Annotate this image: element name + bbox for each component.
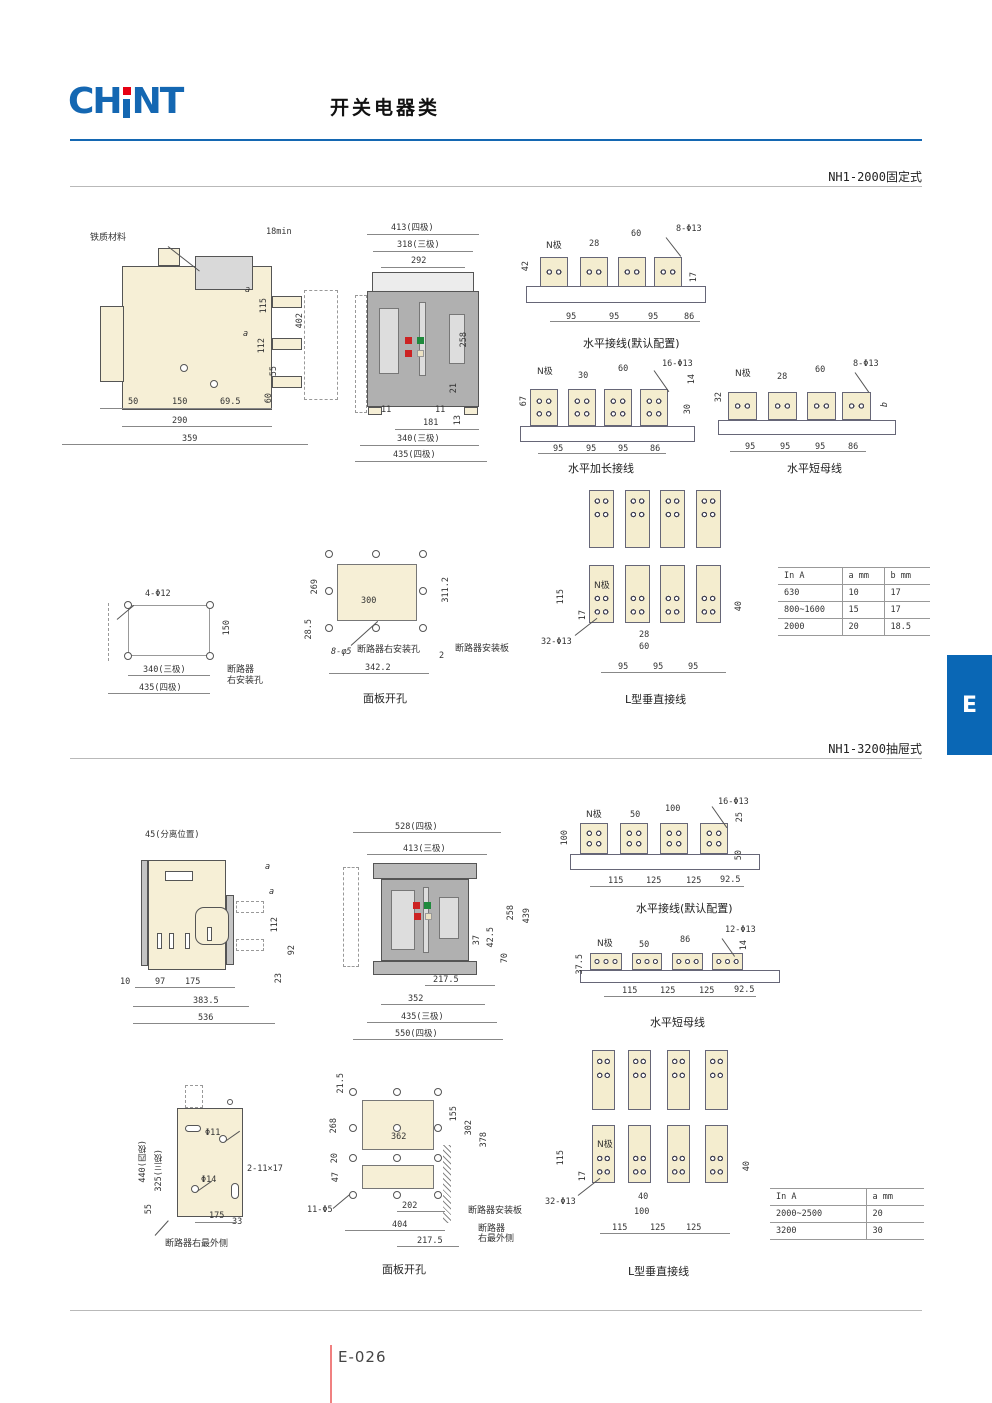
dim-100: 100 <box>634 1208 649 1217</box>
dim-413-4pole: 413(四极) <box>391 224 434 233</box>
leader-line <box>575 618 598 636</box>
dim-line <box>590 886 744 887</box>
dim-55: 55 <box>270 366 279 376</box>
indicator-red <box>405 350 412 357</box>
dim-50: 50 <box>128 398 138 407</box>
busbar-pad <box>592 1125 615 1183</box>
table-row: 2000~2500 20 <box>770 1206 924 1223</box>
dim-line <box>381 1004 485 1005</box>
header-rule <box>70 139 922 141</box>
panel-hole <box>349 1088 357 1096</box>
note-right-edge: 右最外侧 <box>478 1235 514 1245</box>
busbar-pad <box>660 565 685 623</box>
dim-line <box>62 444 308 445</box>
dim-line <box>730 451 866 452</box>
dim-150: 150 <box>223 620 232 635</box>
dim-2: 2 <box>439 652 444 661</box>
busbar-pad <box>696 565 721 623</box>
panel-hole <box>393 1191 401 1199</box>
footer-accent-line <box>330 1345 332 1403</box>
table-row: 3200 30 <box>770 1223 924 1240</box>
leader-line <box>855 372 870 392</box>
dim-a: a <box>269 888 274 897</box>
dim-line <box>550 321 700 322</box>
diagram-title: 面板开孔 <box>363 690 407 706</box>
dim-42: 42 <box>522 261 531 271</box>
dim-112: 112 <box>271 917 280 932</box>
dim-28: 28 <box>589 240 599 249</box>
dim-95: 95 <box>688 663 698 672</box>
panel-hole <box>419 624 427 632</box>
centerline-dashed <box>108 603 109 661</box>
table-cell: a mm <box>866 1189 924 1206</box>
dim-55: 55 <box>145 1204 154 1214</box>
hole-rectangle <box>128 605 210 656</box>
panel-hole <box>325 550 333 558</box>
dim-100: 100 <box>665 805 680 814</box>
busbar-pad <box>640 389 668 426</box>
table-cell: a mm <box>842 568 884 585</box>
dim-line <box>397 1246 459 1247</box>
diagram-title: 水平短母线 <box>650 1014 705 1030</box>
busbar-pad <box>705 1050 728 1110</box>
dim-155: 155 <box>450 1106 459 1121</box>
dim-115: 115 <box>622 987 637 996</box>
panel-hole <box>393 1124 401 1132</box>
dim-340-3pole: 340(三极) <box>143 666 186 675</box>
dim-181: 181 <box>423 419 438 428</box>
indicator-green <box>417 337 424 344</box>
logo-text-left: CH <box>68 87 121 118</box>
table-cell: 3200 <box>770 1223 866 1240</box>
dim-92.5: 92.5 <box>720 876 740 885</box>
dim-115: 115 <box>557 1150 566 1165</box>
section1-label: NH1-2000固定式 <box>70 168 922 185</box>
busbar-pad <box>620 823 648 854</box>
dim-30: 30 <box>684 404 693 414</box>
dim-115: 115 <box>612 1224 627 1233</box>
busbar-pad <box>604 389 632 426</box>
foot-left <box>368 407 382 415</box>
table-row: 800~1600 15 17 <box>778 602 930 619</box>
dim-line <box>395 429 479 430</box>
dim-line <box>100 408 272 409</box>
dim-8-d5: 8-φ5 <box>331 648 351 657</box>
dim-60: 60 <box>618 365 628 374</box>
table-cell: b mm <box>884 568 930 585</box>
diagram-title: 水平短母线 <box>787 460 842 476</box>
dim-28: 28 <box>639 631 649 640</box>
dim-70: 70 <box>501 953 510 963</box>
dim-11-d5: 11-Φ5 <box>307 1206 333 1215</box>
dim-line <box>353 1039 503 1040</box>
dim-435-3pole: 435(三极) <box>401 1013 444 1022</box>
dim-d14: Φ14 <box>201 1176 216 1185</box>
dim-125: 125 <box>646 877 661 886</box>
diagram-title: L型垂直接线 <box>628 1263 689 1279</box>
dim-112: 112 <box>258 338 267 353</box>
busbar-pad <box>540 257 568 287</box>
dim-95: 95 <box>618 663 628 672</box>
table-cell: 17 <box>884 585 930 602</box>
slot-11x17 <box>231 1183 239 1199</box>
dim-92: 92 <box>288 945 297 955</box>
dim-40: 40 <box>743 1161 752 1171</box>
diagram-horizontal-default-2: N极 50 100 16-Φ13 25 100 50 115 125 125 9… <box>560 798 790 913</box>
busbar-pad <box>632 953 662 970</box>
busbar-pad <box>667 1050 690 1110</box>
dim-b: b <box>881 402 890 407</box>
dim-258: 258 <box>507 905 516 920</box>
dim-402: 402 <box>296 313 305 328</box>
dim-11: 11 <box>435 406 445 415</box>
dim-217.5: 217.5 <box>433 976 459 985</box>
panel-hole <box>419 550 427 558</box>
diagram-mounting-plate-2: 440(四极) 325(三极) Φ11 Φ14 2-11×17 55 175 3… <box>115 1085 325 1260</box>
diagram-title: 面板开孔 <box>382 1261 426 1277</box>
leader-line <box>666 237 682 257</box>
dim-383.5: 383.5 <box>193 997 219 1006</box>
busbar-pad <box>628 1125 651 1183</box>
table-cell: 20 <box>842 619 884 636</box>
dim-359: 359 <box>182 435 197 444</box>
page-number: E-026 <box>338 1348 387 1366</box>
small-hole <box>227 1099 233 1105</box>
table-cell: 20 <box>866 1206 924 1223</box>
table-header-row: In A a mm b mm <box>778 568 930 585</box>
dim-25: 25 <box>736 812 745 822</box>
busbar-pad <box>580 823 608 854</box>
panel-hole <box>393 1154 401 1162</box>
busbar-pad <box>590 953 622 970</box>
busbar-pad <box>580 257 608 287</box>
foot-right <box>464 407 478 415</box>
logo-i-stem <box>123 99 130 118</box>
dim-340-3pole: 340(三极) <box>397 435 440 444</box>
table-cell: 30 <box>866 1223 924 1240</box>
dim-95: 95 <box>653 663 663 672</box>
dim-40: 40 <box>735 601 744 611</box>
dim-a: a <box>243 330 248 339</box>
dim-352: 352 <box>408 995 423 1004</box>
dim-line <box>367 234 479 235</box>
dim-100: 100 <box>561 830 570 845</box>
dim-16-d13: 16-Φ13 <box>662 360 693 369</box>
dim-325-3pole: 325(三极) <box>155 1149 164 1192</box>
mount-hole <box>206 652 214 660</box>
panel-hole <box>349 1154 357 1162</box>
busbar-pad <box>768 392 797 420</box>
dim-18min: 18min <box>266 228 292 237</box>
busbar-base <box>526 286 706 303</box>
busbar-base <box>580 970 780 983</box>
diagram-side-view-2: 45(分离位置) a a 112 92 23 10 97 175 383.5 5… <box>105 815 340 1040</box>
busbar-pad <box>589 490 614 548</box>
dim-440-4pole: 440(四极) <box>139 1140 148 1183</box>
dim-42.5: 42.5 <box>487 927 496 947</box>
dim-16-d13: 16-Φ13 <box>718 798 749 807</box>
table-cell: 2000 <box>778 619 842 636</box>
busbar-base <box>570 854 760 870</box>
note-breaker: 断路器 <box>227 666 254 676</box>
dim-line <box>367 1022 497 1023</box>
dim-14: 14 <box>740 940 749 950</box>
dim-17: 17 <box>690 272 699 282</box>
breaker-tab <box>158 248 180 266</box>
dim-4-d12: 4-Φ12 <box>145 590 171 599</box>
dim-line <box>355 461 487 462</box>
busbar-pad <box>618 257 646 287</box>
busbar-pad <box>592 1050 615 1110</box>
dim-528-4pole: 528(四极) <box>395 823 438 832</box>
busbar-base <box>718 420 896 435</box>
handle-octagon <box>195 907 229 945</box>
dim-269: 269 <box>311 579 320 594</box>
mount-hole <box>206 601 214 609</box>
panel-hole <box>349 1191 357 1199</box>
busbar-pad <box>625 490 650 548</box>
dim-60: 60 <box>815 366 825 375</box>
dim-378: 378 <box>480 1132 489 1147</box>
cutout-area-lower <box>362 1165 434 1189</box>
leader-line <box>351 621 378 646</box>
dim-21.5: 21.5 <box>337 1073 346 1093</box>
note-mounting-plate: 断路器安装板 <box>455 645 509 655</box>
diagram-horizontal-default-1: N极 28 60 8-Φ13 42 17 95 95 95 86 水平接线(默认… <box>520 225 920 350</box>
dim-line <box>600 1233 730 1234</box>
dim-125: 125 <box>699 987 714 996</box>
dim-10: 10 <box>120 978 130 987</box>
diagram-title: 水平加长接线 <box>568 460 634 476</box>
terminal-dashed <box>236 901 264 913</box>
dim-290: 290 <box>172 417 187 426</box>
indicator-red <box>405 337 412 344</box>
dim-line <box>135 987 235 988</box>
terminal-upper <box>272 296 302 308</box>
mount-hole <box>180 364 188 372</box>
diagram-title: 水平接线(默认配置) <box>636 900 733 916</box>
dim-125: 125 <box>686 877 701 886</box>
busbar-pad <box>705 1125 728 1183</box>
busbar-base <box>520 426 695 442</box>
terminal-mid <box>272 338 302 350</box>
note-breaker-right-edge: 断路器右最外侧 <box>165 1240 228 1250</box>
panel-dashed-outline <box>304 290 338 400</box>
note-right-mount-hole: 断路器右安装孔 <box>357 646 420 656</box>
panel-hole <box>434 1154 442 1162</box>
panel-hole <box>393 1088 401 1096</box>
section2-label: NH1-3200抽屉式 <box>70 740 922 757</box>
dim-line <box>381 267 465 268</box>
bottom-flange <box>373 961 477 975</box>
dim-439: 439 <box>523 908 532 923</box>
busbar-pad <box>728 392 757 420</box>
chapter-tab-e: E <box>947 655 992 755</box>
dim-50: 50 <box>735 850 744 860</box>
busbar-pad <box>589 565 614 623</box>
vent-slot <box>169 933 174 949</box>
table-row: 630 10 17 <box>778 585 930 602</box>
table-header-row: In A a mm <box>770 1189 924 1206</box>
dim-40: 40 <box>638 1193 648 1202</box>
panel-hole <box>325 587 333 595</box>
dim-125: 125 <box>650 1224 665 1233</box>
dim-292: 292 <box>411 257 426 266</box>
logo-i-mark <box>121 84 132 118</box>
diagram-l-vertical-2: N极 115 17 32-Φ13 40 100 115 125 125 40 L… <box>540 1045 790 1290</box>
dim-28.5: 28.5 <box>305 619 314 639</box>
mount-hole <box>210 380 218 388</box>
dim-300: 300 <box>361 597 376 606</box>
spec-table-2: In A a mm 2000~2500 20 3200 30 <box>770 1188 924 1240</box>
panel-hole <box>372 550 380 558</box>
label-n-pole: N极 <box>735 370 751 380</box>
pole4-dashed-outline <box>355 295 367 413</box>
dim-a: a <box>265 863 270 872</box>
dim-32-d13: 32-Φ13 <box>545 1198 576 1207</box>
front-left-panel <box>391 890 415 950</box>
indicator-green <box>424 902 431 909</box>
terminal-dashed <box>236 939 264 951</box>
diagram-front-view-2: 528(四极) 413(三极) 258 439 37 42.5 70 217.5… <box>335 815 550 1045</box>
dim-line <box>133 1023 275 1024</box>
label-n-pole: N极 <box>594 582 610 592</box>
busbar-pad <box>842 392 871 420</box>
dim-413-3pole: 413(三极) <box>403 845 446 854</box>
dim-line <box>128 675 210 676</box>
logo-text-right: NT <box>132 87 183 118</box>
dim-115: 115 <box>557 589 566 604</box>
label-n-pole: N极 <box>597 940 613 950</box>
dim-line <box>195 1222 237 1223</box>
dim-line <box>122 426 272 427</box>
dim-60: 60 <box>265 393 274 403</box>
dim-line <box>367 854 487 855</box>
dim-line <box>425 985 495 986</box>
page-title: 开关电器类 <box>330 93 440 120</box>
table-cell: 17 <box>884 602 930 619</box>
label-n-pole: N极 <box>597 1141 613 1151</box>
dim-2-11x17: 2-11×17 <box>247 1165 283 1174</box>
dim-line <box>133 1006 249 1007</box>
dim-50: 50 <box>639 941 649 950</box>
dim-line <box>108 693 210 694</box>
dim-268: 268 <box>330 1118 339 1133</box>
busbar-pad <box>625 565 650 623</box>
table-cell: 630 <box>778 585 842 602</box>
table-cell: 18.5 <box>884 619 930 636</box>
busbar-pad <box>568 389 596 426</box>
diagram-side-view-1: 铁质材料 18min a 115 402 a 112 55 60 50 150 … <box>60 218 380 463</box>
diagram-horizontal-short-2: N极 50 86 12-Φ13 14 37.5 115 125 125 92.5… <box>560 920 790 1030</box>
busbar-pad <box>660 490 685 548</box>
dim-92.5: 92.5 <box>734 986 754 995</box>
indicator-blank <box>417 350 424 357</box>
dim-318-3pole: 318(三极) <box>397 241 440 250</box>
dim-60: 60 <box>639 643 649 652</box>
front-center-slot <box>423 887 429 953</box>
indicator-red <box>414 913 421 920</box>
busbar-pad <box>667 1125 690 1183</box>
dim-line <box>329 673 429 674</box>
dim-17: 17 <box>579 1171 588 1181</box>
dim-150: 150 <box>172 398 187 407</box>
mount-hole <box>124 652 132 660</box>
slot-oval <box>185 1125 201 1132</box>
dim-69.5: 69.5 <box>220 398 240 407</box>
cutout-area <box>337 564 417 621</box>
dim-23: 23 <box>275 973 284 983</box>
terminal-strip <box>372 272 474 292</box>
dim-8-d13: 8-Φ13 <box>676 225 702 234</box>
dim-175: 175 <box>209 1212 224 1221</box>
section1-rule <box>70 186 922 187</box>
dim-line <box>360 445 479 446</box>
panel-hole <box>349 1124 357 1132</box>
diagram-panel-cutout-2: 21.5 268 20 47 155 302 378 362 11-Φ5 202… <box>305 1060 537 1292</box>
panel-hole <box>434 1124 442 1132</box>
busbar-pad <box>807 392 836 420</box>
dim-21: 21 <box>450 383 459 393</box>
diagram-l-vertical-1: N极 115 17 32-Φ13 28 60 95 95 95 40 L型垂直接… <box>535 483 780 713</box>
dim-175: 175 <box>185 978 200 987</box>
dim-12-d13: 12-Φ13 <box>725 926 756 935</box>
diagram-mounting-holes-1: 4-Φ12 150 340(三极) 435(四极) 断路器 右安装孔 <box>95 575 310 710</box>
busbar-pad <box>672 953 703 970</box>
label-n-pole: N极 <box>537 368 553 378</box>
indicator-red <box>413 902 420 909</box>
pole4-dashed-outline <box>343 867 359 967</box>
chint-logo: CH NT <box>68 84 182 118</box>
busbar-pad <box>660 823 688 854</box>
note-right-mount-hole: 右安装孔 <box>227 677 263 687</box>
dim-line <box>397 1211 445 1212</box>
table-cell: In A <box>770 1189 866 1206</box>
dim-20: 20 <box>331 1153 340 1163</box>
table-cell: 15 <box>842 602 884 619</box>
dim-311.2: 311.2 <box>442 577 451 603</box>
top-flange <box>373 863 477 879</box>
callout-iron-material: 铁质材料 <box>90 234 126 244</box>
dim-14: 14 <box>688 374 697 384</box>
front-left-panel <box>379 308 399 374</box>
busbar-pad <box>712 953 743 970</box>
dim-30: 30 <box>578 372 588 381</box>
dim-60: 60 <box>631 230 641 239</box>
busbar-pad <box>654 257 682 287</box>
table-cell: 10 <box>842 585 884 602</box>
callout-disconnect-position: 45(分离位置) <box>145 831 199 840</box>
dim-125: 125 <box>686 1224 701 1233</box>
dim-362: 362 <box>391 1133 406 1142</box>
dim-258: 258 <box>460 332 469 347</box>
dim-13: 13 <box>454 415 463 425</box>
table-row: 2000 20 18.5 <box>778 619 930 636</box>
dim-line <box>373 251 473 252</box>
dim-line <box>345 1230 445 1231</box>
dim-line <box>601 672 726 673</box>
busbar-pad <box>628 1050 651 1110</box>
dim-50: 50 <box>630 811 640 820</box>
dim-125: 125 <box>660 987 675 996</box>
leader-line <box>333 1194 350 1209</box>
dim-217.5: 217.5 <box>417 1237 443 1246</box>
dim-line <box>538 453 666 454</box>
busbar-pad <box>696 490 721 548</box>
vent-slot <box>157 933 162 949</box>
spec-table-1: In A a mm b mm 630 10 17 800~1600 15 17 … <box>778 567 930 636</box>
section2-rule <box>70 758 922 759</box>
